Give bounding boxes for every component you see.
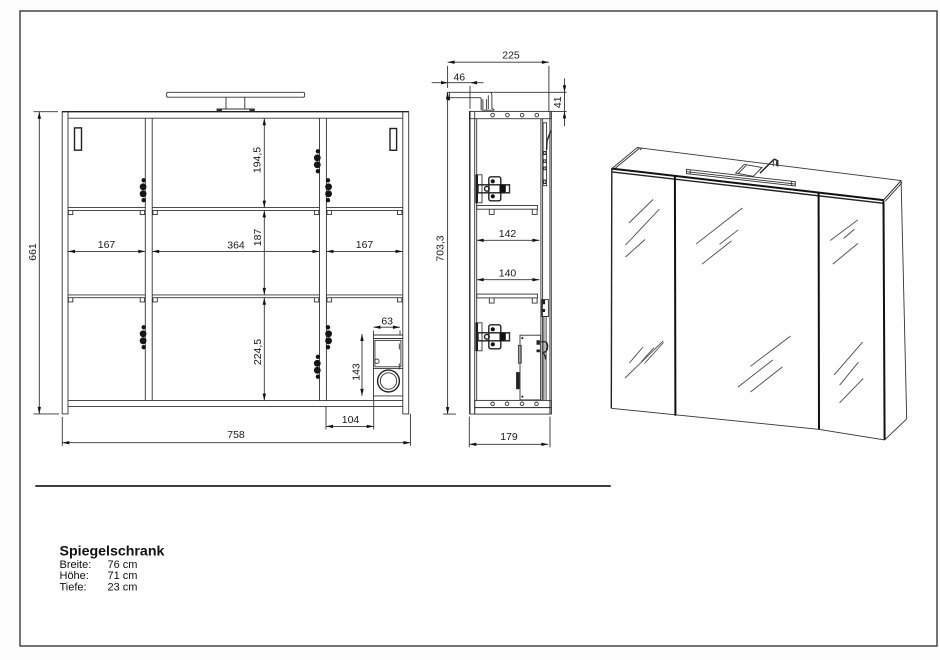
svg-text:46: 46 bbox=[453, 71, 465, 83]
svg-text:Höhe:: Höhe: bbox=[60, 570, 89, 582]
svg-text:Tiefe:: Tiefe: bbox=[60, 582, 87, 594]
svg-text:142: 142 bbox=[499, 228, 517, 240]
svg-text:194,5: 194,5 bbox=[251, 147, 263, 173]
svg-text:76 cm: 76 cm bbox=[108, 559, 138, 571]
svg-text:179: 179 bbox=[500, 431, 518, 443]
svg-text:224,5: 224,5 bbox=[252, 339, 264, 365]
svg-text:661: 661 bbox=[27, 243, 39, 261]
svg-text:143: 143 bbox=[350, 363, 362, 381]
svg-text:Breite:: Breite: bbox=[60, 559, 92, 571]
svg-text:225: 225 bbox=[502, 50, 520, 62]
svg-text:140: 140 bbox=[499, 268, 517, 280]
svg-text:364: 364 bbox=[227, 240, 245, 252]
svg-text:187: 187 bbox=[252, 229, 264, 247]
svg-text:63: 63 bbox=[381, 316, 393, 328]
svg-text:23 cm: 23 cm bbox=[108, 582, 138, 594]
svg-text:41: 41 bbox=[552, 96, 564, 108]
svg-text:Spiegelschrank: Spiegelschrank bbox=[60, 543, 165, 559]
svg-text:167: 167 bbox=[98, 239, 116, 251]
svg-text:758: 758 bbox=[227, 429, 245, 441]
svg-text:703,3: 703,3 bbox=[434, 235, 446, 261]
svg-text:104: 104 bbox=[342, 414, 360, 426]
svg-text:71 cm: 71 cm bbox=[108, 570, 138, 582]
svg-text:167: 167 bbox=[356, 239, 374, 251]
